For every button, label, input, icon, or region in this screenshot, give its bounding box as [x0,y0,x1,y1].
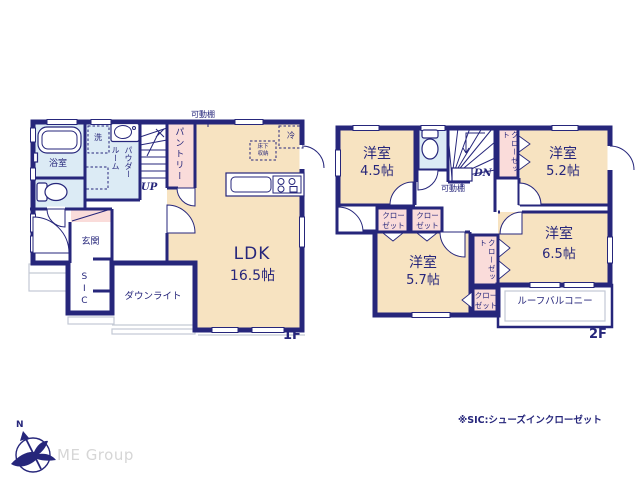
entrance-label: 玄関 [70,237,111,247]
window [252,328,284,333]
kitchen-counter [226,173,304,196]
balcony-sliding-door [564,283,594,288]
compass-north-label: N [16,420,24,430]
balcony-sliding-door [530,283,560,288]
closet-mid-label: クローゼット [478,239,495,285]
stairs-up-label: UP [141,182,157,194]
room-6_5-name: 洋室 [528,226,590,242]
window [212,328,238,333]
kitchen-door-arc [302,146,324,168]
toilet-fixture-2f [422,130,438,159]
window [31,168,36,180]
room-5_7-size: 5.7帖 [392,274,454,289]
window [91,120,111,125]
floorplan-canvas: 浴室 洗 パウダールーム UP パントリー 可動棚 冷 床下収納 LDK 16.… [0,0,640,480]
compass-icon [11,431,56,472]
room-5_2-name: 洋室 [532,146,594,162]
sic-note: ※SIC:シューズインクローゼット [458,416,602,427]
downlight-label: ダウンライト [113,292,193,303]
eaves-band [112,329,195,334]
door-arc-outside-2f [610,146,634,170]
toilet-fixture-1f [37,183,67,201]
room-5_2-size: 5.2帖 [532,165,594,180]
porch [29,264,68,291]
ldk-label: LDK [212,245,292,265]
stairs-down-label: DN [474,168,492,180]
pantry-label: パントリー [173,127,183,187]
powder-room-label: パウダールーム [109,146,135,182]
underfloor-storage-label: 床下収納 [256,144,270,158]
stairs-1f [140,128,167,178]
movable-shelf-label-2f: 可動棚 [441,184,465,193]
closet-hall-left-label: クローゼット [379,211,408,231]
room-4_5-name: 洋室 [346,146,408,162]
window [608,237,613,263]
door-gap-2f [608,146,613,170]
window [31,128,36,142]
room-6_5-size: 6.5帖 [528,248,590,263]
hall-door-arc-2f [338,207,363,232]
shoe-closet-label: SIC [79,272,89,314]
window [336,150,341,176]
toilet-door-arc-2f [418,170,438,190]
movable-shelf-label-1f: 可動棚 [191,110,215,119]
kitchen-door-gap [300,145,305,169]
window [47,120,77,125]
fridge-label: 冷 [281,131,301,140]
roof-balcony-label: ルーフバルコニー [512,297,598,308]
logo-text: ME Group [57,447,134,464]
floor1-label: 1F [283,329,301,344]
window [353,126,379,131]
vanity-sink [111,124,139,142]
window [552,126,578,131]
window [300,217,305,247]
ldk-size-label: 16.5帖 [210,268,295,284]
room-4_5-size: 4.5帖 [346,165,408,180]
entrance-step [68,317,114,324]
closet-small-label: クローゼット [474,291,498,311]
bathroom-label: 浴室 [37,159,79,169]
closet-top-label: クローゼット [501,131,518,177]
room-5_7-name: 洋室 [392,255,454,271]
floor2-label: 2F [589,328,607,343]
closet-hall-right-label: クローゼット [413,211,442,231]
window [235,120,263,125]
window [412,313,450,318]
washer-label: 洗 [88,133,108,142]
